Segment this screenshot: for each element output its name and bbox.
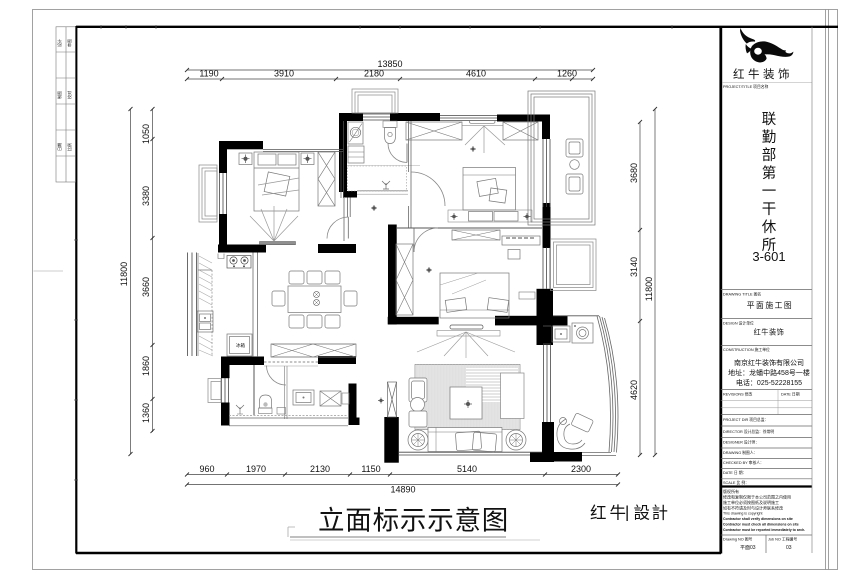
- svg-text:第: 第: [762, 164, 777, 182]
- svg-text:设计: 设计: [56, 39, 62, 47]
- svg-text:|: |: [625, 504, 629, 522]
- svg-text:DIRECTOR 设计总监：徐常明: DIRECTOR 设计总监：徐常明: [723, 429, 774, 434]
- svg-text:Contractor must check all dime: Contractor must check all dimensions on …: [723, 523, 799, 527]
- svg-text:14890: 14890: [390, 485, 415, 495]
- svg-text:PROJECT/TITLE 项目名称: PROJECT/TITLE 项目名称: [723, 84, 769, 89]
- svg-text:13850: 13850: [377, 59, 402, 69]
- svg-text:2300: 2300: [571, 464, 591, 474]
- svg-text:3380: 3380: [141, 186, 151, 206]
- svg-text:960: 960: [199, 464, 214, 474]
- svg-text:DATE 日 期：: DATE 日 期：: [723, 470, 746, 475]
- svg-text:3140: 3140: [629, 257, 639, 277]
- svg-text:红牛装饰: 红牛装饰: [754, 328, 785, 337]
- svg-text:制图: 制图: [56, 91, 62, 99]
- svg-text:红牛装饰: 红牛装饰: [733, 67, 793, 81]
- svg-text:3-601: 3-601: [752, 249, 785, 264]
- svg-text:干: 干: [762, 202, 777, 218]
- svg-text:PROJECT DIR 项目总监：: PROJECT DIR 项目总监：: [723, 417, 768, 422]
- svg-text:联: 联: [762, 111, 777, 128]
- svg-text:部: 部: [762, 147, 777, 164]
- svg-text:一: 一: [762, 184, 777, 200]
- svg-text:校对: 校对: [66, 91, 72, 99]
- svg-text:修改和复制仅限于本公司范围之内使用: 修改和复制仅限于本公司范围之内使用: [723, 494, 791, 500]
- svg-text:Contractor must be reported im: Contractor must be reported immediately …: [723, 528, 805, 532]
- svg-text:4610: 4610: [466, 69, 486, 79]
- svg-text:休: 休: [762, 219, 777, 236]
- svg-text:03: 03: [786, 545, 792, 551]
- svg-text:11800: 11800: [119, 262, 129, 286]
- svg-text:2130: 2130: [310, 464, 330, 474]
- svg-text:Drawing NO 图号: Drawing NO 图号: [723, 537, 753, 542]
- svg-text:Job NO 工程编号: Job NO 工程编号: [768, 537, 797, 542]
- svg-text:This drawing is copyright: This drawing is copyright: [723, 512, 763, 516]
- svg-text:地址：龙蟠中路458号一楼: 地址：龙蟠中路458号一楼: [728, 368, 810, 377]
- svg-text:CONSTRUCTION 施工单位: CONSTRUCTION 施工单位: [723, 347, 770, 352]
- svg-text:DESIGN 设计单位: DESIGN 设计单位: [723, 321, 754, 326]
- svg-text:3910: 3910: [274, 69, 294, 79]
- svg-text:南京红牛装饰有限公司: 南京红牛装饰有限公司: [734, 358, 804, 367]
- svg-text:红牛: 红牛: [590, 504, 629, 523]
- svg-text:平面施工图: 平面施工图: [747, 300, 793, 310]
- svg-text:电话：025-52228155: 电话：025-52228155: [736, 378, 802, 387]
- svg-text:DESIGNER 设计师：: DESIGNER 设计师：: [723, 440, 759, 445]
- svg-text:1150: 1150: [361, 464, 380, 474]
- svg-text:3660: 3660: [141, 277, 151, 297]
- svg-text:CHECKED BY 审核人：: CHECKED BY 审核人：: [723, 460, 764, 465]
- svg-text:审图: 审图: [66, 39, 72, 47]
- svg-text:1360: 1360: [141, 403, 151, 423]
- svg-text:1260: 1260: [557, 69, 577, 79]
- svg-text:平面03: 平面03: [740, 545, 756, 551]
- svg-text:Contractor shall verify dimens: Contractor shall verify dimensions on si…: [723, 517, 793, 521]
- svg-text:DRAWING TITLE 图名: DRAWING TITLE 图名: [723, 292, 761, 297]
- svg-text:1860: 1860: [141, 356, 151, 376]
- svg-text:1970: 1970: [246, 464, 266, 474]
- svg-text:如有不符请及时与设计师联系修改: 如有不符请及时与设计师联系修改: [723, 505, 783, 511]
- svg-text:日期: 日期: [56, 143, 62, 151]
- svg-text:11800: 11800: [644, 277, 654, 301]
- svg-text:設計: 設計: [634, 504, 670, 523]
- svg-text:1190: 1190: [199, 69, 218, 79]
- svg-text:比例: 比例: [66, 143, 72, 151]
- svg-text:SCALE 比 例：: SCALE 比 例：: [723, 480, 749, 485]
- svg-text:4620: 4620: [629, 380, 639, 400]
- svg-text:版权所有: 版权所有: [723, 488, 739, 494]
- svg-text:立面标示示意图: 立面标示示意图: [318, 506, 509, 536]
- svg-text:DATE 日期: DATE 日期: [781, 392, 800, 397]
- svg-text:勤: 勤: [762, 129, 777, 146]
- svg-text:冰箱: 冰箱: [236, 342, 245, 349]
- svg-text:1050: 1050: [141, 124, 151, 144]
- svg-text:DRAWING 制图人：: DRAWING 制图人：: [723, 450, 757, 455]
- svg-text:施工单位必须按图纸及说明施工: 施工单位必须按图纸及说明施工: [723, 499, 779, 505]
- svg-text:2180: 2180: [364, 69, 384, 79]
- svg-text:3680: 3680: [629, 163, 639, 183]
- svg-text:REVISIONS 修改: REVISIONS 修改: [723, 392, 753, 397]
- svg-text:5140: 5140: [457, 464, 477, 474]
